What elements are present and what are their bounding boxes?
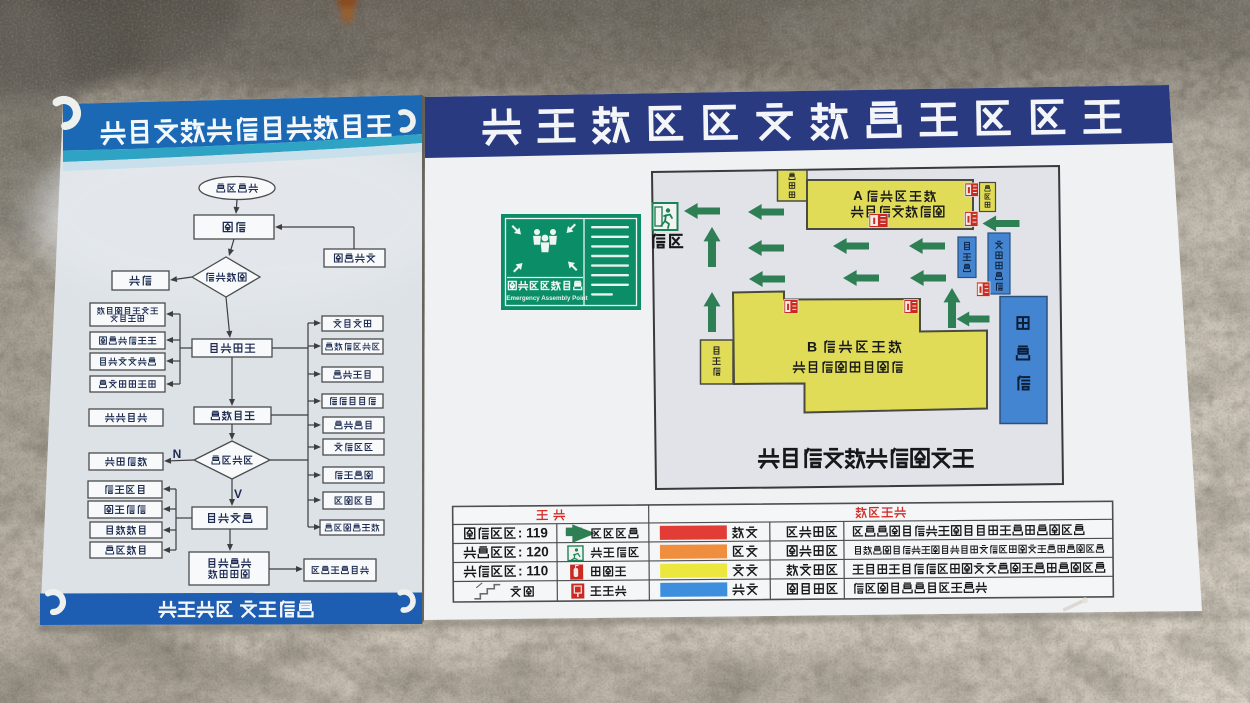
svg-text:: 110: : 110: [518, 563, 548, 578]
svg-text:Emergency Assembly Point: Emergency Assembly Point: [506, 295, 587, 302]
svg-text:: 119: : 119: [518, 525, 548, 540]
svg-text:: 120: : 120: [518, 544, 549, 559]
svg-text:V: V: [234, 487, 242, 501]
svg-text:A: A: [853, 188, 863, 203]
svg-text:N: N: [173, 447, 182, 461]
svg-text:B: B: [807, 339, 817, 355]
